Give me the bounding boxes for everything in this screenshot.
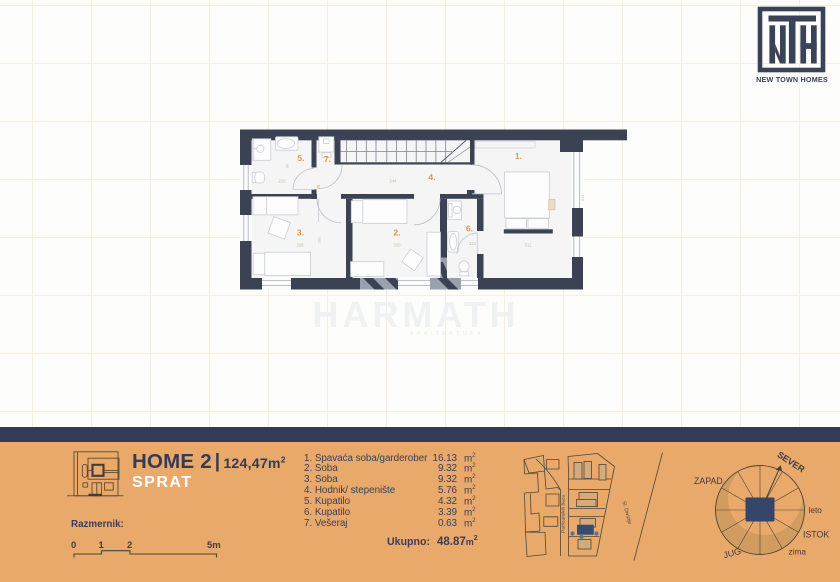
svg-text:Sl. Divizije: Sl. Divizije <box>620 500 632 525</box>
svg-text:2: 2 <box>127 540 132 551</box>
svg-text:5.: 5. <box>297 153 304 163</box>
svg-text:3.: 3. <box>297 228 304 238</box>
svg-text:311: 311 <box>525 243 532 248</box>
svg-text:JUG: JUG <box>722 546 742 560</box>
svg-text:Partizanskih baza: Partizanskih baza <box>560 495 566 533</box>
svg-text:90: 90 <box>316 184 321 189</box>
svg-text:1: 1 <box>99 540 105 551</box>
svg-text:329: 329 <box>297 243 305 248</box>
svg-text:SEVER: SEVER <box>775 449 806 474</box>
svg-text:6.: 6. <box>466 224 473 234</box>
svg-text:ISTOK: ISTOK <box>803 530 829 540</box>
svg-text:zima: zima <box>789 547 807 557</box>
svg-text:5m: 5m <box>207 540 221 551</box>
svg-text:4.: 4. <box>428 172 435 182</box>
svg-text:292: 292 <box>317 236 322 243</box>
svg-text:1.: 1. <box>515 151 522 161</box>
svg-text:ZAPAD: ZAPAD <box>694 476 723 486</box>
svg-text:544: 544 <box>390 179 398 184</box>
svg-text:0: 0 <box>71 540 76 551</box>
svg-text:7.: 7. <box>324 154 331 164</box>
svg-text:311: 311 <box>580 194 585 201</box>
svg-text:2.: 2. <box>393 228 400 238</box>
svg-text:90: 90 <box>285 163 290 168</box>
svg-text:123: 123 <box>469 241 477 246</box>
svg-text:leto: leto <box>809 505 823 515</box>
svg-text:330: 330 <box>394 243 402 248</box>
svg-text:210: 210 <box>279 179 287 184</box>
